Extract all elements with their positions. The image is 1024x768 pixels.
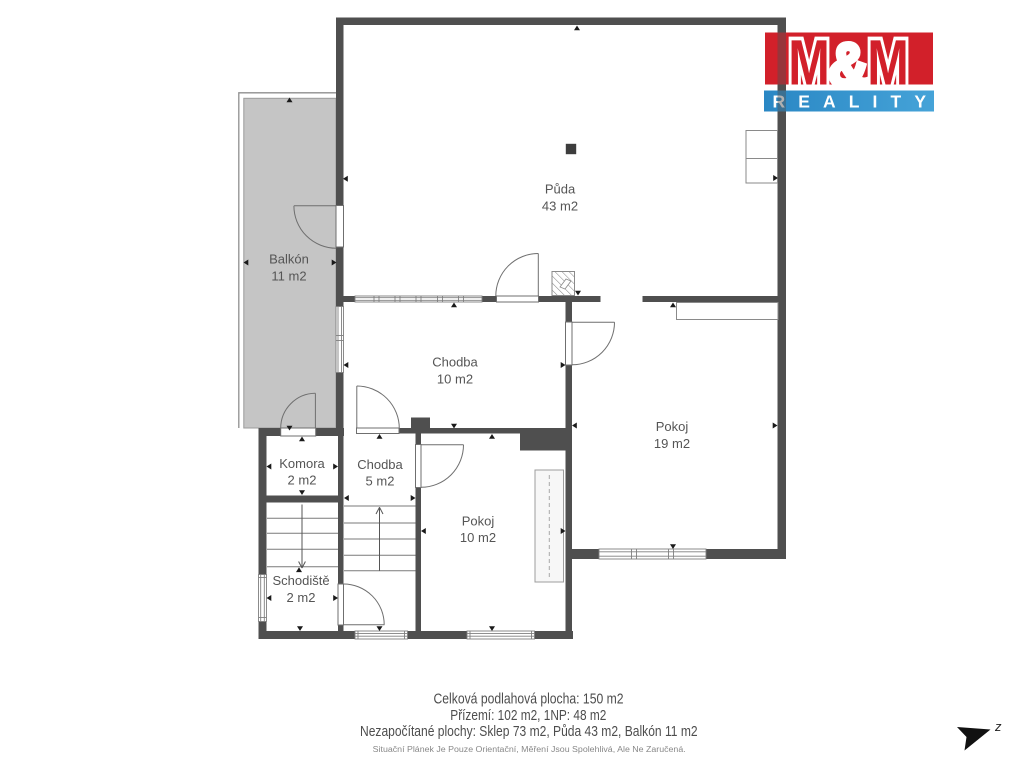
svg-text:19 m2: 19 m2 — [654, 436, 690, 451]
svg-text:Nezapočítané plochy: Sklep 73: Nezapočítané plochy: Sklep 73 m2, Půda 4… — [360, 723, 698, 740]
svg-text:2 m2: 2 m2 — [288, 473, 317, 488]
svg-text:43 m2: 43 m2 — [542, 199, 578, 214]
svg-text:Chodba: Chodba — [432, 355, 478, 370]
svg-text:Situační Plánek Je Pouze Orien: Situační Plánek Je Pouze Orientační, Měř… — [373, 745, 686, 754]
svg-text:Komora: Komora — [279, 456, 325, 471]
svg-text:Balkón: Balkón — [269, 252, 309, 267]
svg-text:5 m2: 5 m2 — [366, 474, 395, 489]
svg-text:Celková podlahová plocha: 150: Celková podlahová plocha: 150 m2 — [434, 691, 624, 708]
svg-text:Přízemí: 102 m2, 1NP: 48 m2: Přízemí: 102 m2, 1NP: 48 m2 — [450, 707, 606, 724]
svg-text:Schodiště: Schodiště — [272, 573, 329, 588]
svg-text:M: M — [867, 28, 909, 99]
svg-text:M: M — [788, 28, 830, 99]
svg-text:z: z — [994, 719, 1002, 734]
svg-text:Půda: Půda — [545, 182, 576, 197]
svg-text:11 m2: 11 m2 — [271, 269, 306, 284]
svg-text:10 m2: 10 m2 — [460, 530, 496, 545]
svg-text:2 m2: 2 m2 — [287, 590, 316, 605]
svg-text:Chodba: Chodba — [357, 457, 403, 472]
svg-text:10 m2: 10 m2 — [437, 372, 473, 387]
svg-text:Pokoj: Pokoj — [656, 419, 689, 434]
svg-text:Pokoj: Pokoj — [462, 514, 495, 529]
svg-text:&: & — [828, 32, 869, 100]
